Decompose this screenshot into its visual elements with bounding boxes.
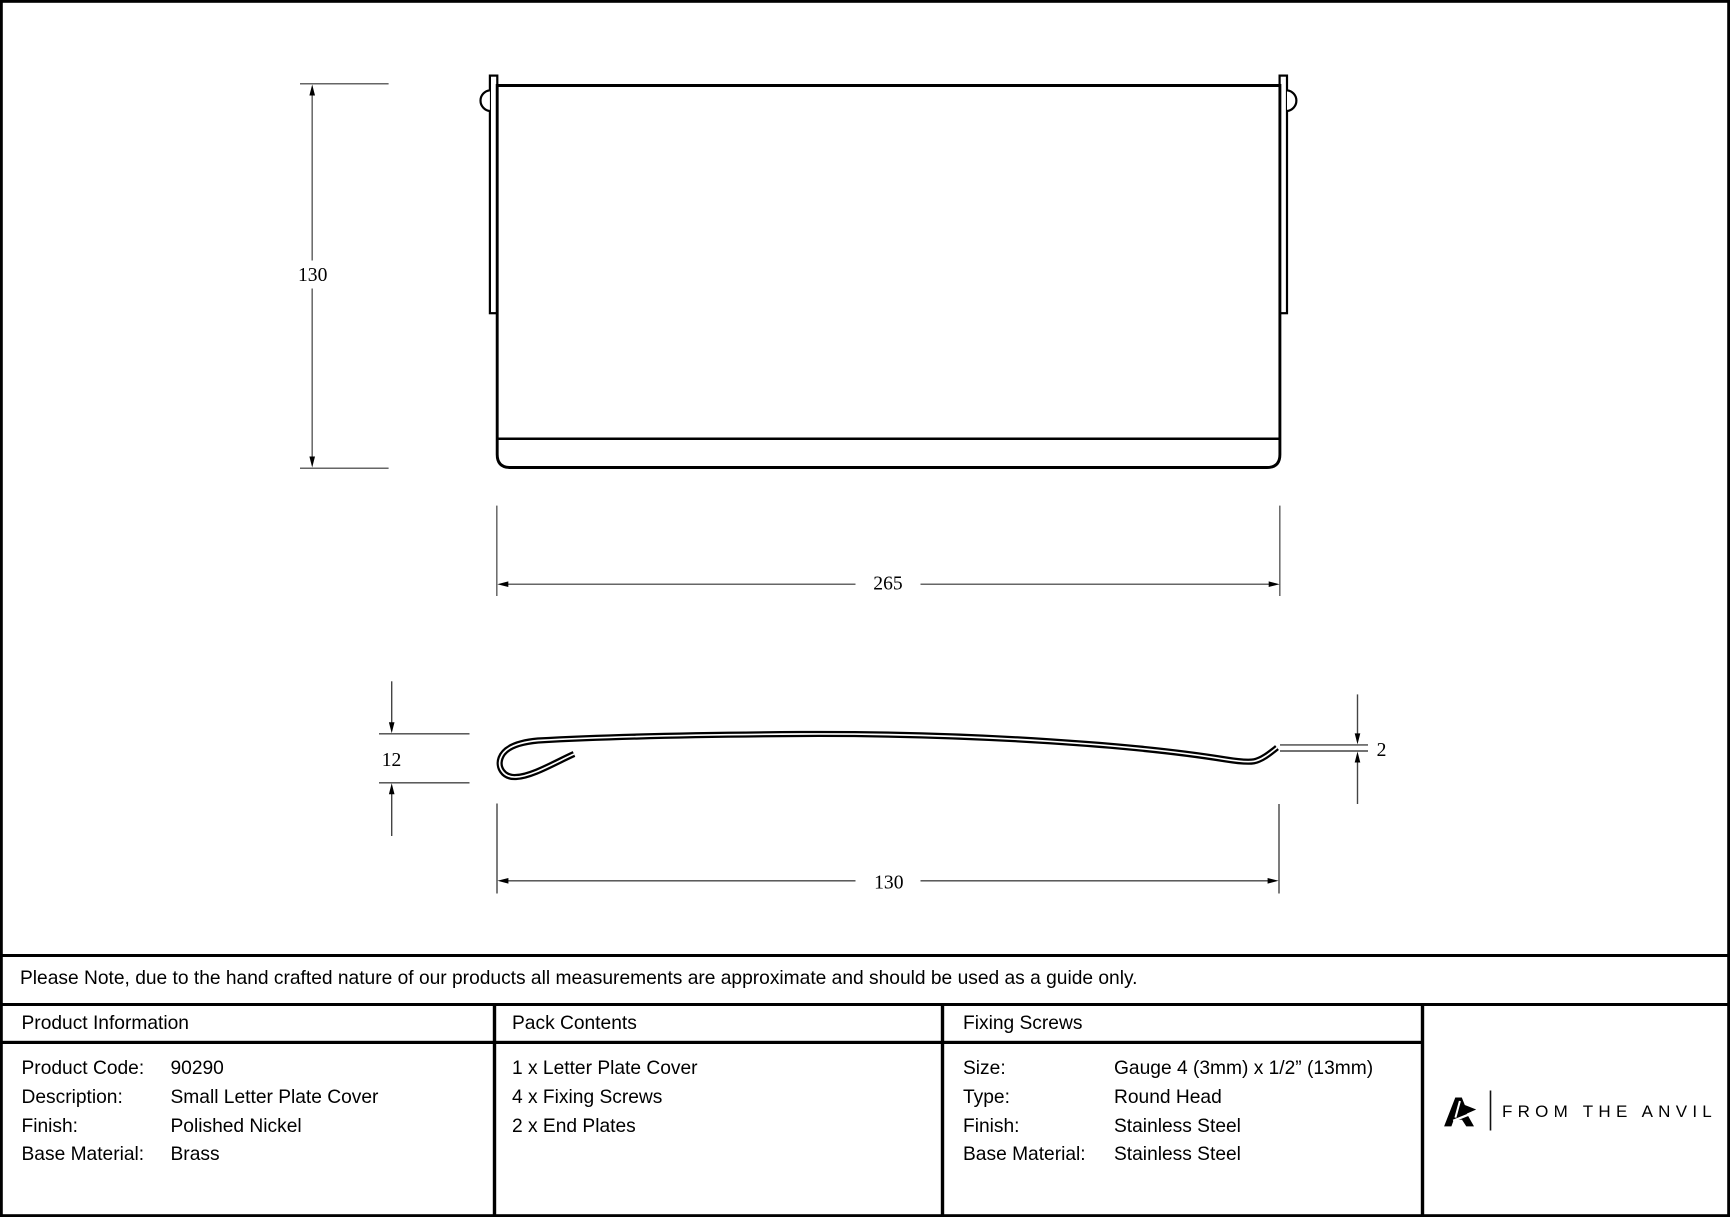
svg-text:2: 2: [1377, 740, 1387, 761]
svg-text:12: 12: [382, 750, 402, 771]
svg-text:130: 130: [874, 873, 904, 894]
svg-text:130: 130: [298, 265, 328, 286]
svg-text:265: 265: [873, 573, 903, 594]
